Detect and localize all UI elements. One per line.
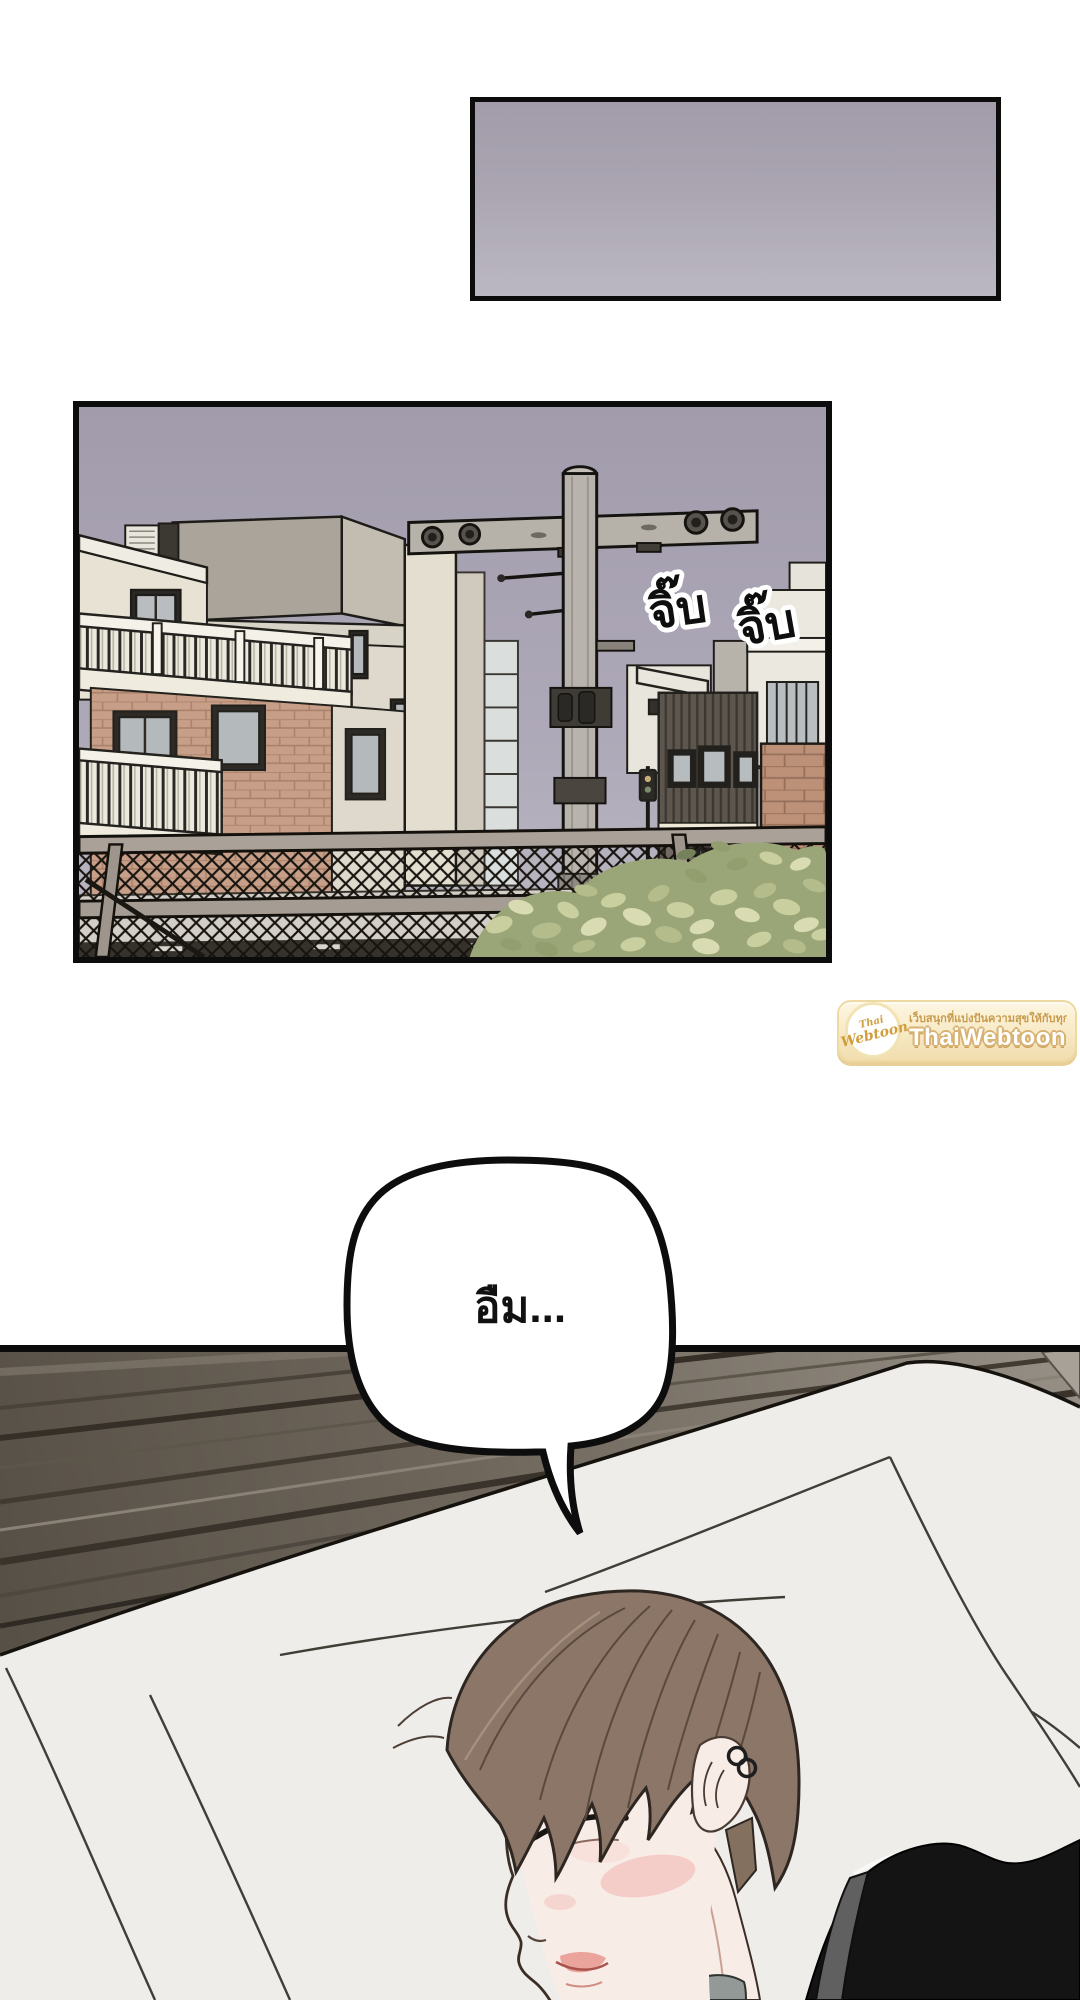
site-watermark: Thai Webtoon เว็บสนุกที่แบ่งปันความสุขให…: [837, 1000, 1077, 1062]
watermark-site-name: ThaiWebtoon: [909, 1024, 1065, 1052]
webtoon-page: nthraside: [0, 0, 1080, 2000]
speech-bubble-text: อืม...: [474, 1283, 566, 1332]
sky-panel: [470, 97, 1001, 301]
city-panel: nthraside: [73, 401, 832, 963]
speech-bubble: อืม...: [320, 1145, 700, 1545]
speech-bubble-shape: [347, 1160, 673, 1533]
thaiwebtoon-logo-circle: Thai Webtoon: [845, 1002, 901, 1058]
thaiwebtoon-logo-script: Thai Webtoon: [837, 1010, 909, 1050]
city-illustration: nthraside: [79, 407, 826, 957]
